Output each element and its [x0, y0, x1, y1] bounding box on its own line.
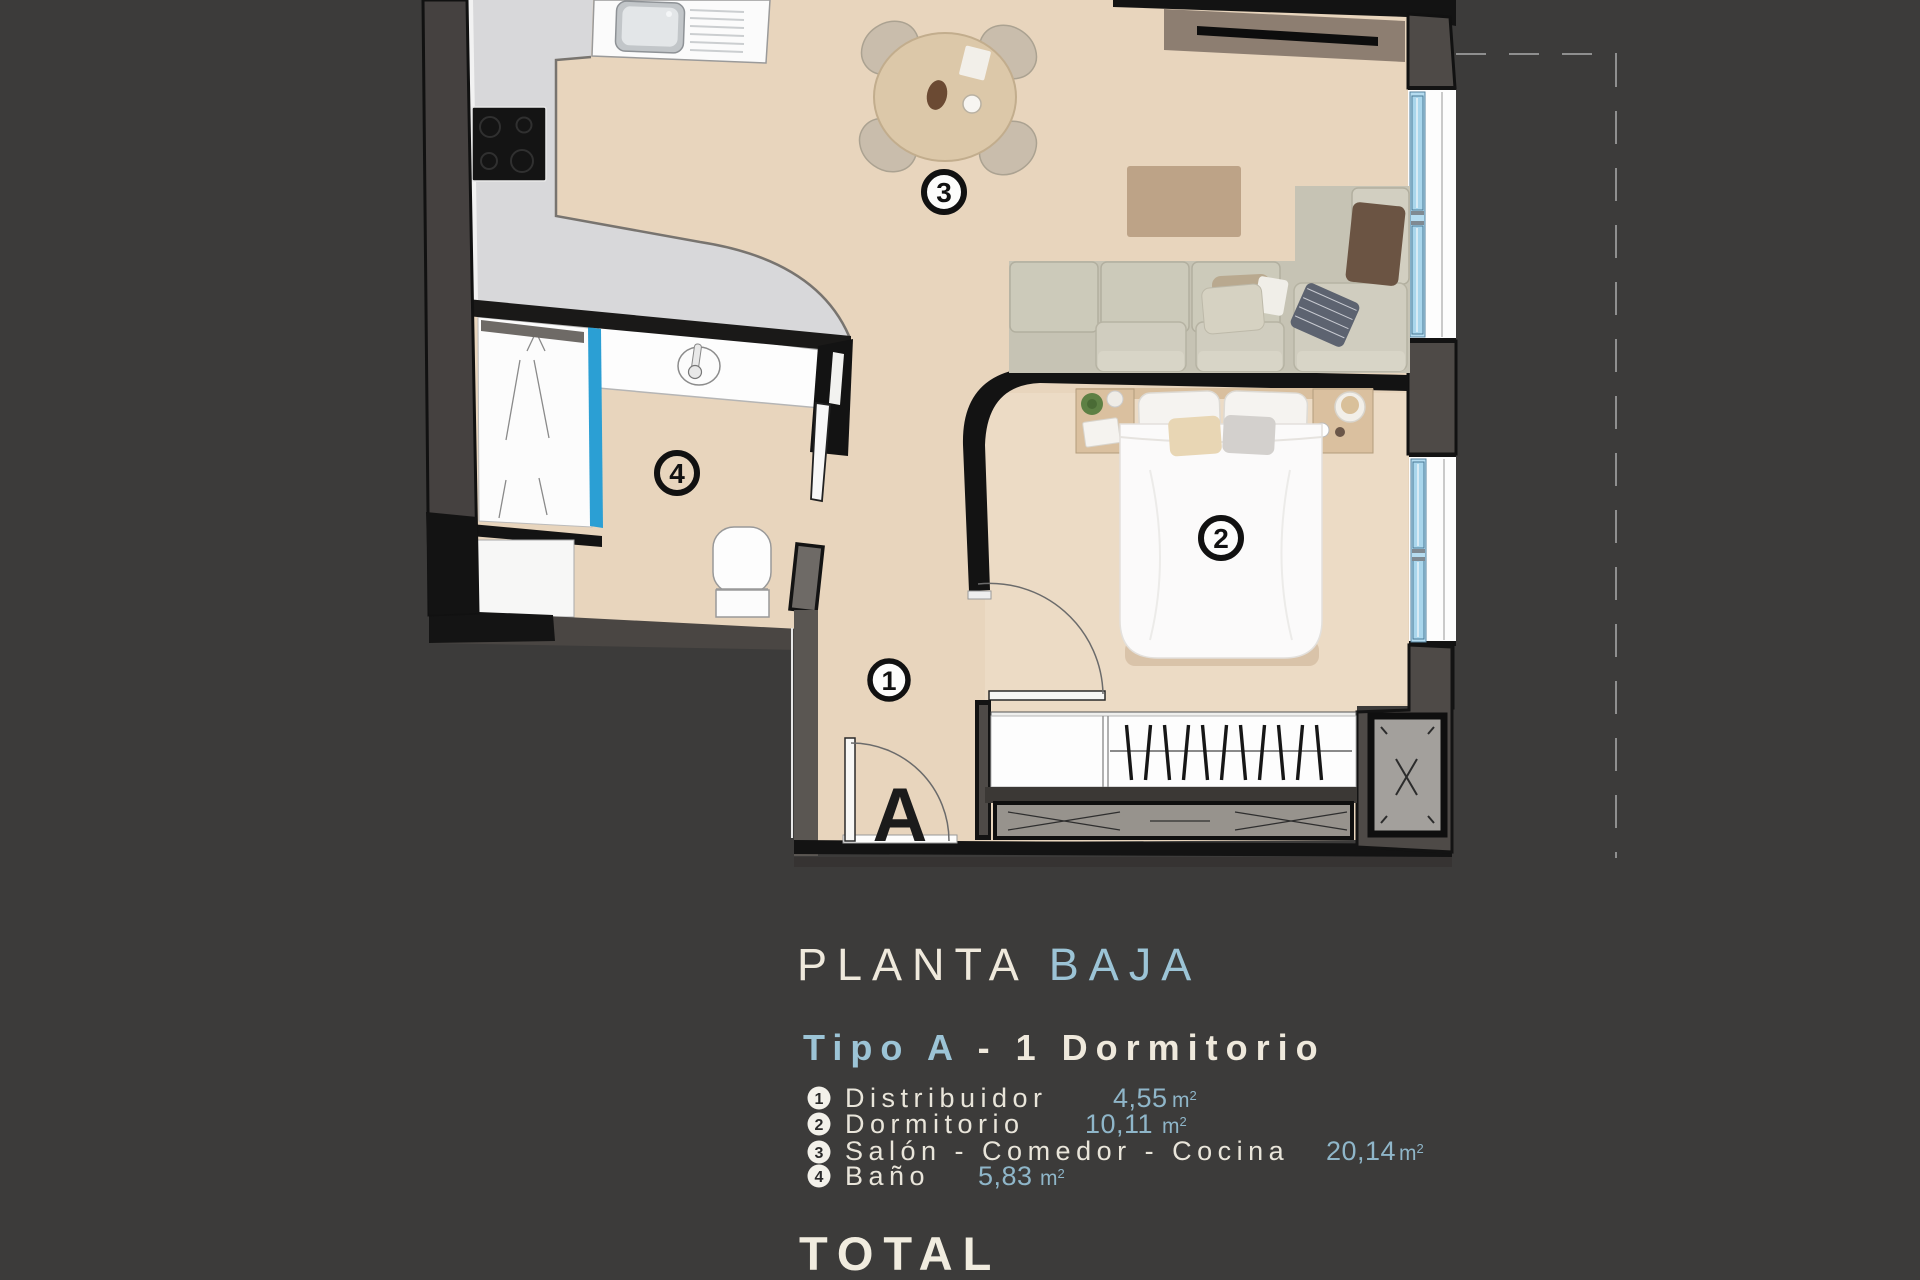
svg-text:4: 4	[815, 1169, 824, 1186]
svg-text:5,83: 5,83	[978, 1161, 1033, 1191]
svg-text:Dormitorio: Dormitorio	[845, 1109, 1025, 1139]
svg-text:10,11: 10,11	[1085, 1109, 1153, 1139]
svg-text:Baño: Baño	[845, 1161, 930, 1191]
svg-text:A: A	[873, 773, 928, 858]
svg-text:3: 3	[936, 177, 952, 208]
svg-text:2: 2	[815, 1117, 824, 1134]
svg-text:TOTAL: TOTAL	[799, 1227, 1001, 1280]
svg-text:Tipo A - 1 Dormitorio: Tipo A - 1 Dormitorio	[803, 1027, 1326, 1068]
svg-text:3: 3	[815, 1145, 824, 1162]
svg-text:4: 4	[669, 458, 685, 489]
svg-text:1: 1	[881, 666, 896, 696]
svg-text:1: 1	[815, 1091, 824, 1108]
svg-text:PLANTA BAJA: PLANTA BAJA	[797, 939, 1201, 990]
svg-text:2: 2	[1213, 523, 1229, 554]
svg-text:20,14: 20,14	[1326, 1136, 1396, 1166]
